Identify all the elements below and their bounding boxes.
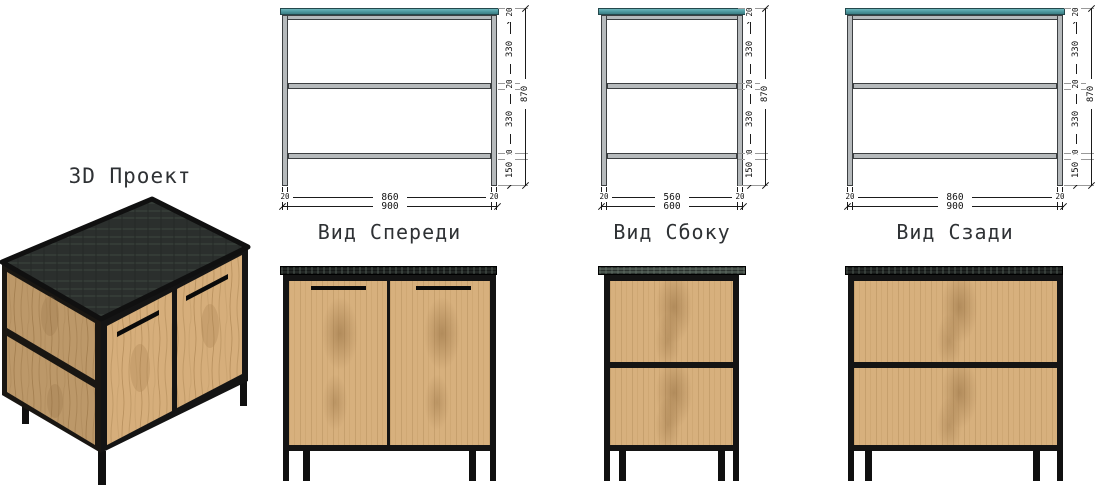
countertop-render [280,266,497,275]
rear-view-drawing: 20 330 20 330 20 150 870 860 20 20 900 В… [845,6,1100,258]
cabinet-leg [303,450,310,481]
cabinet-leg [490,450,496,481]
rear-panel-top [854,281,1057,362]
dim-label: 330 [745,104,755,134]
countertop-render [598,266,746,275]
cabinet-leg [1033,450,1040,481]
rear-render [845,262,1070,488]
lower-rail [607,153,737,159]
dim-label: 150 [745,155,755,185]
dim-label: 20 [842,192,858,202]
cabinet-leg [1057,450,1063,481]
dim-label-outer-width: 600 [655,201,689,212]
dim-label: 20 [505,74,515,94]
view-title-front: Вид Спереди [280,220,499,244]
dim-label: 330 [745,34,755,64]
cabinet-leg [848,450,854,481]
top-rail [282,15,497,20]
furniture-drawing-page: 3D Проект [0,0,1100,488]
dim-label: 20 [505,2,515,22]
dim-label: 20 [1071,74,1081,94]
countertop-edge [598,8,746,15]
left-post [601,15,607,186]
dim-label: 20 [486,192,502,202]
dim-label: 20 [732,192,748,202]
cabinet-leg [865,450,872,481]
cabinet-body [283,275,496,451]
dim-label: 330 [1071,104,1081,134]
dim-label-outer-width: 900 [938,201,972,212]
middle-rail [288,83,491,89]
middle-rail [607,83,737,89]
cabinet-leg [98,451,106,485]
cabinet-body [604,275,739,451]
side-view-drawing: 20 330 20 330 20 150 870 560 20 20 600 В… [598,6,798,258]
lower-rail [853,153,1057,159]
view-title-side: Вид Сбоку [598,220,746,244]
left-post [847,15,853,186]
lower-rail [288,153,491,159]
door-handle [416,286,471,290]
dim-label: 20 [745,74,755,94]
middle-rail [853,83,1057,89]
rear-panel-bottom [854,368,1057,445]
countertop-edge [845,8,1065,15]
dim-label: 330 [505,34,515,64]
dim-label-outer-width: 900 [373,201,407,212]
dim-label: 150 [1071,155,1081,185]
side-render [598,262,788,488]
cabinet-leg [619,450,626,481]
dim-label: 20 [1071,2,1081,22]
side-panel-top [610,281,733,362]
right-post [737,15,743,186]
cabinet-door-left [289,281,387,445]
dim-label: 20 [596,192,612,202]
cabinet-3d-render [0,196,265,488]
top-rail [847,15,1063,20]
left-post [282,15,288,186]
dim-label: 150 [505,155,515,185]
cabinet-door-right [390,281,490,445]
cabinet-leg [283,450,289,481]
dim-label: 330 [1071,34,1081,64]
dim-label-total-height: 870 [520,79,530,109]
countertop-render [845,266,1063,275]
dim-label: 20 [277,192,293,202]
dim-label: 330 [505,104,515,134]
top-rail [601,15,743,20]
countertop-edge [280,8,499,15]
cabinet-leg [604,450,610,481]
door-handle [311,286,366,290]
cabinet-leg [718,450,725,481]
side-panel-bottom [610,368,733,445]
right-post [1057,15,1063,186]
dim-label-total-height: 870 [1086,79,1096,109]
right-post [491,15,497,186]
3d-project-title: 3D Проект [50,164,210,188]
cabinet-leg [733,450,739,481]
cabinet-body [848,275,1063,451]
dim-label-total-height: 870 [760,79,770,109]
front-render [280,262,505,488]
dim-label: 20 [745,2,755,22]
cabinet-leg [469,450,476,481]
view-title-rear: Вид Сзади [845,220,1065,244]
front-view-drawing: 20 330 20 330 20 150 870 860 20 20 900 В… [280,6,535,258]
dim-label: 20 [1052,192,1068,202]
